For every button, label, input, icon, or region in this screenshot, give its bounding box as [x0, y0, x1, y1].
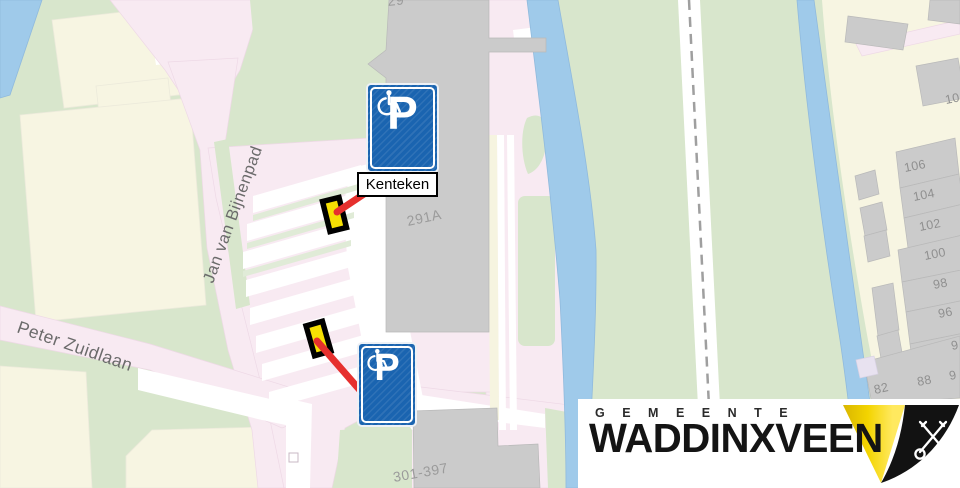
wheelchair-icon: [372, 89, 404, 119]
house-number: 10: [944, 90, 960, 107]
gemeente-waddinxveen-logo: GEMEENTE WADDINXVEEN: [578, 399, 960, 488]
kenteken-label: Kenteken: [357, 172, 438, 197]
parking-spot-marker-1: [323, 197, 347, 231]
house-number: 88: [916, 372, 933, 389]
wheelchair-icon: [363, 348, 390, 374]
canal-west: [0, 0, 42, 98]
house-number: 98: [932, 275, 949, 292]
kiosk: [289, 453, 298, 462]
sign-face: P: [370, 87, 435, 169]
map-screenshot: Jan van Bijnenpad Peter Zuidlaan 291A 30…: [0, 0, 960, 488]
house-number: 96: [937, 304, 954, 321]
disabled-parking-sign-2: P: [357, 342, 417, 427]
sign-face: P: [361, 346, 413, 423]
disabled-parking-sign-1: P: [366, 83, 439, 173]
logo-waddinxveen-text: WADDINXVEEN: [589, 415, 883, 462]
building-lavender: [856, 356, 878, 378]
